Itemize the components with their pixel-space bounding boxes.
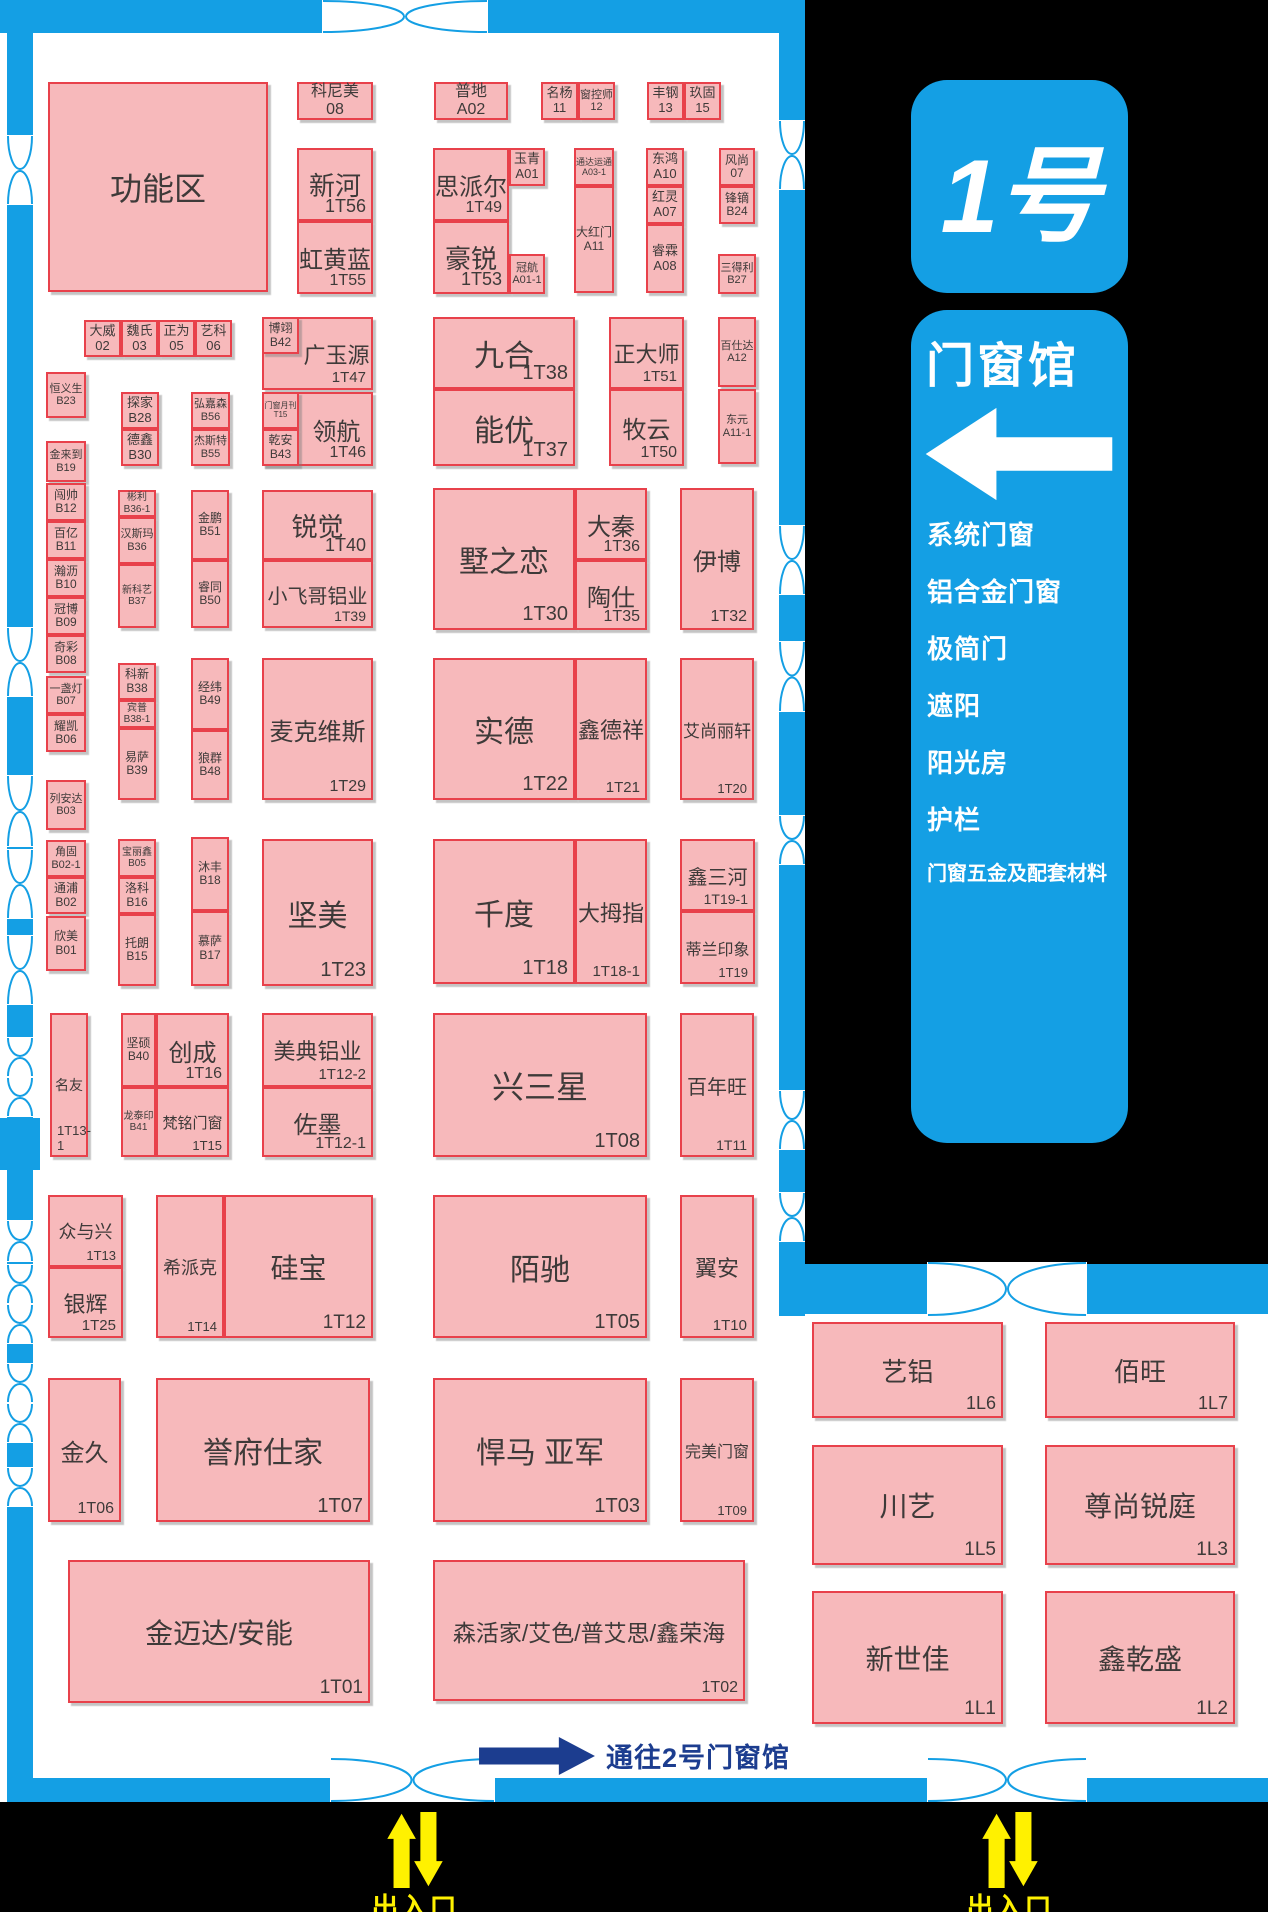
booth-name: 德鑫 <box>127 433 153 448</box>
hall-number-badge: 1号 <box>911 80 1128 293</box>
door-icon <box>7 135 33 205</box>
booth-number: 1T38 <box>522 362 568 385</box>
booth-name: 奇彩 <box>54 641 78 654</box>
booth: 墅之恋1T30 <box>433 488 575 630</box>
booth-number: 07 <box>730 167 743 180</box>
booth: 正为05 <box>158 320 195 357</box>
category-item: 护栏 <box>927 807 1123 833</box>
booth-number: 1T37 <box>522 439 568 462</box>
booth-number: 11 <box>553 101 567 116</box>
door-icon <box>330 1758 495 1802</box>
hall-name-text: 门窗馆 <box>926 326 1079 396</box>
booth-name: 丰钢 <box>652 86 678 101</box>
booth-number: 1T23 <box>320 959 366 982</box>
booth-number: 1T13-1 <box>57 1123 91 1153</box>
booth-number: B37 <box>128 596 146 607</box>
booth-name: 汉斯玛 <box>121 528 154 540</box>
booth-name: 一盏灯 <box>50 683 83 695</box>
booth: 完美门窗1T09 <box>680 1378 754 1522</box>
door-icon <box>7 849 33 919</box>
booth: 闯帅B12 <box>46 483 86 521</box>
booth-number: A02 <box>457 101 485 119</box>
booth: 九合1T38 <box>433 317 575 389</box>
booth-number: 1T13 <box>86 1248 116 1263</box>
exhibition-floor-plan: 功能区科尼美08新河1T56虹黄蓝1T55普地A02思派尔1T49豪锐1T53玉… <box>0 0 1268 1912</box>
door-icon <box>7 1220 33 1262</box>
booth-number: A10 <box>653 167 676 182</box>
booth-number: A01-1 <box>512 274 541 286</box>
booth: 陌驰1T05 <box>433 1195 647 1338</box>
booth-number: B16 <box>126 896 147 909</box>
booth-name: 经纬 <box>198 681 222 694</box>
booth-number: 08 <box>326 101 344 119</box>
booth: 乾安B43 <box>262 429 299 466</box>
booth: 通达运通A03-1 <box>574 148 614 186</box>
right-arrow-icon <box>478 1737 596 1775</box>
booth-name: 宾普 <box>127 703 147 714</box>
wall <box>0 1118 40 1170</box>
booth-name: 杰斯特 <box>194 435 227 447</box>
booth-number: 1L5 <box>964 1539 996 1561</box>
booth-number: 1T22 <box>522 773 568 796</box>
booth-name: 金鹏 <box>198 512 222 525</box>
booth-number: 02 <box>95 339 109 354</box>
booth-name: 科尼美 <box>311 83 359 101</box>
booth: 金鹏B51 <box>191 490 229 560</box>
booth: 博翊B42 <box>262 317 299 354</box>
booth-number: 1T18 <box>522 957 568 980</box>
booth: 魏氏03 <box>121 320 158 357</box>
booth-number: 1T21 <box>606 779 640 796</box>
booth: 冠博B09 <box>46 597 86 635</box>
booth-name: 金来到 <box>50 449 83 461</box>
booth: 狼群B48 <box>191 730 229 800</box>
category-list: 系统门窗铝合金门窗极简门遮阳阳光房护栏门窗五金及配套材料 <box>927 522 1123 884</box>
booth: 探家B28 <box>121 392 159 429</box>
booth-number: B36-1 <box>124 504 151 515</box>
booth-name: 洛科 <box>125 882 149 895</box>
booth: 通浦B02 <box>46 877 86 914</box>
door-icon <box>7 1264 33 1304</box>
door-icon <box>7 1363 33 1403</box>
door-icon <box>779 815 805 865</box>
booth: 功能区 <box>48 82 268 292</box>
to-hall2-sign: 通往2号门窗馆 <box>478 1736 790 1775</box>
booth-number: 1T06 <box>78 1500 114 1518</box>
booth-name: 红灵 <box>652 190 678 205</box>
booth-number: B24 <box>726 205 747 218</box>
booth-number: 03 <box>132 339 146 354</box>
booth: 虹黄蓝1T55 <box>297 221 373 294</box>
booth: 能优1T37 <box>433 389 575 466</box>
booth: 鑫乾盛1L2 <box>1045 1591 1235 1724</box>
booth-number: 1T53 <box>461 269 502 290</box>
booth: 德鑫B30 <box>121 429 159 466</box>
booth: 名友1T13-1 <box>50 1013 88 1157</box>
booth-number: 1L7 <box>1198 1393 1228 1414</box>
booth: 门窗月刊T15 <box>262 392 299 429</box>
booth: 佐墨1T12-1 <box>262 1087 373 1157</box>
booth-name: 乾安 <box>268 434 292 447</box>
booth: 东鸿A10 <box>646 148 684 186</box>
up-down-arrows-icon <box>981 1812 1039 1888</box>
booth-number: 1T19 <box>718 965 748 980</box>
door-icon <box>7 935 33 1005</box>
booth-number: B48 <box>199 765 220 778</box>
left-arrow-icon <box>925 400 1113 508</box>
booth: 艾尚丽轩1T20 <box>680 658 754 800</box>
booth: 经纬B49 <box>191 658 229 730</box>
booth: 百亿B11 <box>46 521 86 559</box>
booth-number: 1T47 <box>332 369 366 386</box>
booth-name: 百仕达 <box>721 340 754 352</box>
booth-name: 列安达 <box>50 793 83 805</box>
booth: 美典铝业1T12-2 <box>262 1013 373 1087</box>
entrance-arrows-left <box>386 1812 444 1888</box>
booth-name: 风尚 <box>725 154 749 167</box>
door-icon <box>7 1077 33 1117</box>
booth-name: 宝丽鑫 <box>122 847 152 858</box>
up-down-arrows-icon <box>386 1812 444 1888</box>
category-item: 系统门窗 <box>927 522 1123 548</box>
booth-name: 瀚沥 <box>54 565 78 578</box>
booth-number: 1T14 <box>187 1319 217 1334</box>
booth-name: 艾尚丽轩 <box>682 660 752 798</box>
door-icon <box>7 1037 33 1077</box>
booth-number: B07 <box>56 695 76 707</box>
booth-number: 1T29 <box>330 778 366 796</box>
booth: 实德1T22 <box>433 658 575 800</box>
booth-number: 1L6 <box>966 1393 996 1414</box>
booth-number: 1T40 <box>325 535 366 556</box>
hall-number-text: 1号 <box>941 111 1099 262</box>
booth-name: 坚硕 <box>126 1037 150 1050</box>
booth: 大秦1T36 <box>575 488 647 560</box>
booth: 金来到B19 <box>46 441 86 482</box>
booth-number: A12 <box>727 352 747 364</box>
booth-number: B09 <box>55 616 76 629</box>
booth: 沐丰B18 <box>191 837 229 911</box>
booth-name: 慕萨 <box>198 935 222 948</box>
booth: 银辉1T25 <box>48 1267 123 1338</box>
booth-number: B05 <box>128 858 146 869</box>
booth-number: 1T11 <box>716 1137 747 1153</box>
booth-number: B19 <box>56 462 76 474</box>
booth: 希派克1T14 <box>156 1195 224 1338</box>
booth: 大威02 <box>84 320 121 357</box>
booth-name: 弘嘉森 <box>194 398 227 410</box>
booth-number: 1T55 <box>330 272 366 290</box>
booth: 龙泰印B41 <box>121 1087 156 1157</box>
booth-name: 新科艺 <box>122 585 152 596</box>
booth-number: 1T56 <box>325 196 366 217</box>
booth: 托朗B15 <box>118 914 156 986</box>
booth-name: 易萨 <box>125 751 149 764</box>
to-hall2-prefix: 通往 <box>606 1743 662 1773</box>
booth-number: 13 <box>658 101 672 116</box>
booth-number: B02 <box>55 896 76 909</box>
booth-number: 1T09 <box>717 1503 747 1518</box>
booth-name: 角固 <box>55 846 77 858</box>
booth-name: 正为 <box>163 324 189 339</box>
booth: 千度1T18 <box>433 839 575 984</box>
category-item: 阳光房 <box>927 750 1123 776</box>
booth-name: 沐丰 <box>198 861 222 874</box>
entrance-label-right: 出入口 <box>965 1886 1055 1912</box>
booth-name: 玉青 <box>514 152 540 167</box>
door-icon <box>7 1467 33 1507</box>
booth: 蒂兰印象1T19 <box>680 911 755 984</box>
to-hall2-number: 2 <box>662 1743 678 1773</box>
booth-number: B39 <box>126 764 147 777</box>
door-icon <box>7 1304 33 1344</box>
booth-number: A01 <box>515 167 538 182</box>
booth-name: 睿同 <box>198 581 222 594</box>
booth: 硅宝1T12 <box>224 1195 373 1338</box>
booth-number: B06 <box>55 733 76 746</box>
booth: 三得利B27 <box>718 254 756 294</box>
booth-name: 探家 <box>127 396 153 411</box>
booth-name: 欣美 <box>54 930 78 943</box>
booth: 百仕达A12 <box>718 317 756 387</box>
booth-name: 博翊 <box>268 322 292 335</box>
booth-number: A11-1 <box>723 427 752 439</box>
booth-number: 1T30 <box>522 603 568 626</box>
booth: 欣美B01 <box>46 916 86 971</box>
booth-number: 1T12-2 <box>318 1066 366 1083</box>
booth: 伊博1T32 <box>680 488 754 630</box>
booth-name: 冠博 <box>54 603 78 616</box>
booth: 誉府仕家1T07 <box>156 1378 370 1522</box>
booth-name: 通达运通 <box>576 157 612 167</box>
booth-name: 完美门窗 <box>682 1380 752 1520</box>
booth-number: B51 <box>199 525 220 538</box>
booth-number: B23 <box>56 395 76 407</box>
booth-name: 大拇指 <box>577 841 645 982</box>
booth: 普地A02 <box>434 82 508 120</box>
booth-name: 冠航 <box>516 262 538 274</box>
booth-number: 06 <box>206 339 220 354</box>
booth-name: 玖固 <box>689 86 715 101</box>
door-icon <box>7 775 33 847</box>
hall-info-panel: 门窗馆 系统门窗铝合金门窗极简门遮阳阳光房护栏门窗五金及配套材料 <box>911 310 1128 1143</box>
booth: 新世佳1L1 <box>812 1591 1003 1724</box>
booth: 小飞哥铝业1T39 <box>262 560 373 628</box>
booth-name: 锋镝 <box>725 192 749 205</box>
booth-number: B38 <box>126 682 147 695</box>
booth-number: 1T51 <box>643 368 677 385</box>
booth: 思派尔1T49 <box>433 148 509 221</box>
entrance-arrows-right <box>981 1812 1039 1888</box>
booth-name: 艺科 <box>200 324 226 339</box>
booth-name: 三得利 <box>721 262 754 274</box>
booth: 川艺1L5 <box>812 1445 1003 1565</box>
booth-name: 名杨 <box>546 86 572 101</box>
booth: 汉斯玛B36 <box>118 517 156 564</box>
booth-number: 15 <box>695 101 709 116</box>
booth-number: 1T01 <box>320 1677 363 1699</box>
booth-number: B28 <box>128 411 151 426</box>
booth-number: 1T49 <box>466 199 502 217</box>
booth: 坚美1T23 <box>262 839 373 986</box>
booth-number: A08 <box>653 259 676 274</box>
to-hall2-suffix: 号门窗馆 <box>678 1743 790 1773</box>
booth: 艺科06 <box>195 320 232 357</box>
booth-number: B15 <box>126 950 147 963</box>
booth-number: B11 <box>56 540 76 553</box>
booth: 冠航A01-1 <box>509 254 545 294</box>
booth: 宾普B38-1 <box>118 700 156 728</box>
booth: 杰斯特B55 <box>191 429 230 466</box>
booth-number: 1L3 <box>1196 1539 1228 1561</box>
booth-name: 恒义生 <box>50 383 83 395</box>
booth-number: A03-1 <box>582 167 606 177</box>
booth-number: B41 <box>130 1122 148 1133</box>
booth-number: 1T02 <box>702 1679 738 1697</box>
booth-name: 功能区 <box>50 84 266 290</box>
booth: 大红门A11 <box>574 186 614 293</box>
booth: 众与兴1T13 <box>48 1195 123 1267</box>
booth-number: 1T03 <box>594 1495 640 1518</box>
booth: 尊尚锐庭1L3 <box>1045 1445 1235 1565</box>
booth-number: B40 <box>128 1050 149 1063</box>
booth: 慕萨B17 <box>191 911 229 986</box>
booth: 梵铭门窗1T15 <box>156 1087 229 1157</box>
door-icon <box>779 641 805 712</box>
booth-name: 窗控师 <box>580 89 613 101</box>
booth-number: A07 <box>653 205 676 220</box>
entrance-label-left: 出入口 <box>370 1886 460 1912</box>
booth: 鑫三河1T19-1 <box>680 839 755 911</box>
booth: 红灵A07 <box>646 186 684 224</box>
booth: 创成1T16 <box>156 1013 229 1087</box>
category-item: 遮阳 <box>927 693 1123 719</box>
booth: 科尼美08 <box>297 82 373 120</box>
booth-number: B43 <box>270 448 291 461</box>
booth-number: B49 <box>199 694 220 707</box>
door-icon <box>927 1262 1087 1316</box>
booth-name: 通浦 <box>54 882 78 895</box>
booth-number: B56 <box>201 411 221 423</box>
booth: 弘嘉森B56 <box>191 392 230 429</box>
booth: 正大师1T51 <box>609 317 684 389</box>
booth-name: 睿霖 <box>652 244 678 259</box>
booth-name: 魏氏 <box>126 324 152 339</box>
booth-number: B55 <box>201 448 221 460</box>
booth-number: 1T32 <box>711 608 747 626</box>
booth-number: 1T15 <box>192 1138 222 1153</box>
booth-number: 05 <box>169 339 183 354</box>
door-icon <box>779 120 805 190</box>
booth-name: 东鸿 <box>652 152 678 167</box>
booth-name: 大红门 <box>576 226 612 239</box>
booth-number: B42 <box>270 336 291 349</box>
booth-number: 1T46 <box>330 444 366 462</box>
category-item: 门窗五金及配套材料 <box>927 864 1123 884</box>
booth-number: B36 <box>127 541 147 553</box>
category-item: 铝合金门窗 <box>927 579 1123 605</box>
booth: 东元A11-1 <box>718 389 756 464</box>
booth-name: 耀凯 <box>54 720 78 733</box>
booth-name: 大威 <box>89 324 115 339</box>
door-icon <box>927 1758 1087 1802</box>
booth: 睿霖A08 <box>646 224 684 293</box>
booth-number: 1L1 <box>964 1698 996 1720</box>
booth-name: 闯帅 <box>54 489 78 502</box>
door-icon <box>7 627 33 697</box>
booth: 列安达B03 <box>46 780 86 830</box>
booth-number: 1T18-1 <box>592 963 640 980</box>
booth: 耀凯B06 <box>46 714 86 752</box>
booth: 角固B02-1 <box>46 840 86 877</box>
booth-number: B18 <box>199 874 220 887</box>
booth-number: 1T20 <box>717 781 747 796</box>
booth: 新科艺B37 <box>118 564 156 628</box>
booth: 金久1T06 <box>48 1378 121 1522</box>
booth: 锋镝B24 <box>719 186 755 224</box>
booth-name: 彬利 <box>127 492 147 503</box>
booth-number: 1T10 <box>713 1317 747 1334</box>
booth-name: 鑫德祥 <box>577 660 645 798</box>
booth: 丰钢13 <box>647 82 684 120</box>
booth: 艺铝1L6 <box>812 1322 1003 1418</box>
booth-number: 1T25 <box>82 1317 116 1334</box>
booth-number: 1T19-1 <box>704 891 748 907</box>
booth: 兴三星1T08 <box>433 1013 647 1157</box>
booth: 豪锐1T53 <box>433 221 509 294</box>
booth: 佰旺1L7 <box>1045 1322 1235 1418</box>
booth-number: B30 <box>128 448 151 463</box>
booth: 牧云1T50 <box>609 389 684 466</box>
booth: 睿同B50 <box>191 560 229 628</box>
booth: 彬利B36-1 <box>118 490 156 517</box>
booth-number: B10 <box>55 578 76 591</box>
booth-number: 1T36 <box>604 538 640 556</box>
booth-number: T15 <box>274 411 288 420</box>
booth: 瀚沥B10 <box>46 559 86 597</box>
booth-number: 1T39 <box>334 608 366 624</box>
booth-number: 1T12 <box>323 1312 366 1334</box>
booth-name: 百年旺 <box>682 1015 752 1155</box>
booth-number: B17 <box>199 949 220 962</box>
booth-number: 1T50 <box>641 444 677 462</box>
booth: 风尚07 <box>719 148 755 186</box>
door-icon <box>322 0 488 33</box>
booth-name: 普地 <box>455 83 487 101</box>
booth-number: B12 <box>55 502 76 515</box>
category-item: 极简门 <box>927 636 1123 662</box>
booth: 翼安1T10 <box>680 1195 754 1338</box>
booth-number: B08 <box>55 654 76 667</box>
booth: 锐觉1T40 <box>262 490 373 560</box>
booth-number: 1T07 <box>317 1495 363 1518</box>
booth: 窗控师12 <box>578 82 615 120</box>
booth-number: 1L2 <box>1196 1698 1228 1720</box>
door-icon <box>7 1403 33 1443</box>
booth: 鑫德祥1T21 <box>575 658 647 800</box>
door-icon <box>779 525 805 595</box>
booth: 百年旺1T11 <box>680 1013 754 1157</box>
booth-number: 12 <box>590 101 602 113</box>
booth-name: 龙泰印 <box>124 1111 154 1122</box>
booth: 一盏灯B07 <box>46 676 86 714</box>
door-icon <box>779 1090 805 1150</box>
booth-number: B38-1 <box>124 714 151 725</box>
booth-number: 1T16 <box>186 1065 222 1083</box>
booth: 玖固15 <box>684 82 721 120</box>
booth-name: 东元 <box>726 414 748 426</box>
booth-name: 托朗 <box>125 937 149 950</box>
